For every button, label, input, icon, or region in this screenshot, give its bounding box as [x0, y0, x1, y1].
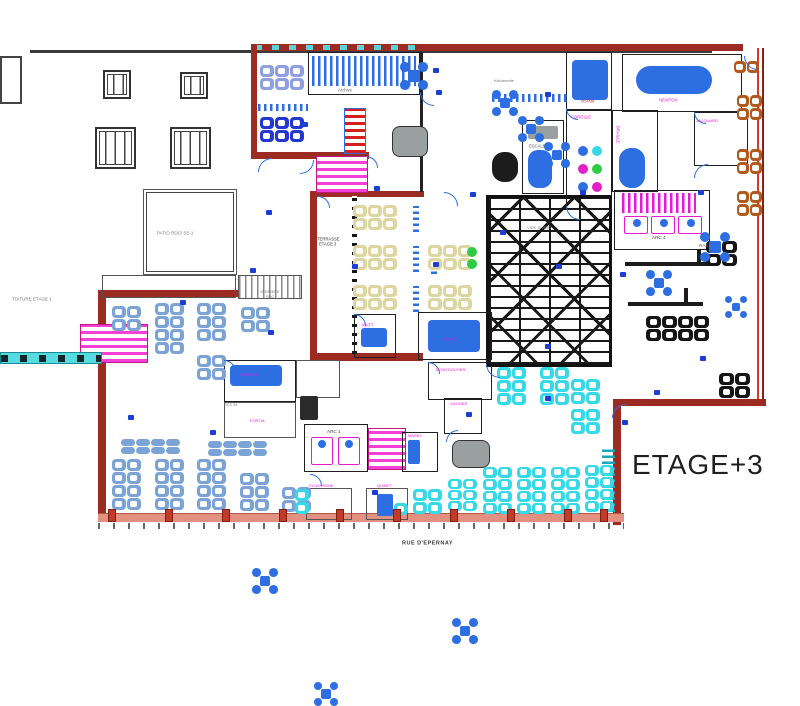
chair-dot: [318, 440, 326, 448]
desk: [197, 498, 211, 510]
blue-marker: [433, 68, 439, 73]
desk: [600, 489, 614, 500]
desk-cluster: [539, 366, 569, 405]
label-nsp06: NSP06: [581, 99, 594, 104]
desk-cluster: [259, 64, 304, 90]
desk: [290, 130, 304, 142]
label-braille: BRAILLE: [615, 126, 620, 143]
desk: [212, 459, 226, 471]
desk: [517, 479, 531, 490]
desk-cluster: [239, 472, 269, 511]
desk: [112, 485, 126, 497]
desk: [555, 367, 569, 379]
blue-marker: [700, 356, 706, 361]
structural-pillar: [507, 509, 515, 522]
planter-1: [413, 206, 419, 232]
blue-marker: [545, 92, 551, 97]
arc4-striped-counter: [622, 193, 696, 213]
floor-title: ETAGE+3: [632, 449, 764, 481]
desk: [166, 447, 180, 454]
desk: [353, 285, 367, 297]
label-synchrone: SYNCHRONE: [309, 484, 333, 488]
desk: [127, 498, 141, 510]
chair-dot: [592, 164, 602, 174]
desk: [197, 329, 211, 341]
desk-cluster: [352, 244, 397, 270]
desk: [678, 316, 693, 328]
desk: [127, 472, 141, 484]
facade-window-3: [95, 127, 136, 169]
desk: [212, 329, 226, 341]
blue-marker: [128, 415, 134, 420]
structural-pillar: [108, 509, 116, 522]
door-swing-arc: [694, 164, 708, 178]
desk: [170, 316, 184, 328]
door-swing-arc: [366, 156, 378, 168]
desk: [458, 298, 472, 310]
facade-window-4: [170, 127, 211, 169]
stairwell-north: [316, 156, 368, 193]
planter-2: [413, 246, 419, 272]
desk: [383, 285, 397, 297]
desk: [555, 380, 569, 392]
desk: [155, 303, 169, 315]
desk: [208, 449, 222, 456]
structural-pillar: [336, 509, 344, 522]
desk: [260, 78, 274, 90]
desk: [551, 467, 565, 478]
blue-marker: [580, 190, 586, 195]
desk-cluster: [570, 378, 600, 404]
label-jacquard: JACQUARD: [696, 119, 718, 123]
terrace-walkway: [102, 275, 236, 298]
label-watt: WATT: [362, 323, 373, 328]
door-swing-arc: [444, 192, 458, 206]
desk: [383, 258, 397, 270]
toiture-glazing-strip: [0, 352, 102, 364]
desk: [368, 298, 382, 310]
desk: [540, 367, 554, 379]
cross-table: [725, 296, 747, 318]
desk-cluster: [154, 458, 184, 510]
desk: [368, 205, 382, 217]
desk: [353, 298, 367, 310]
desk: [497, 380, 511, 392]
desk-cluster: [111, 305, 141, 331]
desk-cluster: [645, 315, 709, 341]
label-fortia: FORTIA: [250, 419, 265, 423]
desk: [212, 498, 226, 510]
desk: [197, 368, 211, 380]
cross-table: [518, 116, 544, 142]
desk: [428, 298, 442, 310]
desk: [170, 459, 184, 471]
chair-dot: [467, 259, 477, 269]
blue-marker: [374, 186, 380, 191]
desk: [719, 373, 734, 385]
desk: [127, 319, 141, 331]
desk: [275, 78, 289, 90]
desk: [551, 491, 565, 502]
desk: [368, 218, 382, 230]
blue-marker: [302, 122, 308, 127]
cross-table-gagner: [452, 618, 478, 644]
desk: [600, 477, 614, 488]
desk: [212, 485, 226, 497]
chair-dot: [578, 146, 588, 156]
desk: [295, 489, 309, 501]
desk: [719, 386, 734, 398]
desk-cluster: [427, 284, 472, 310]
blue-marker: [372, 490, 378, 495]
desk: [646, 316, 661, 328]
desk: [197, 459, 211, 471]
desk: [694, 316, 709, 328]
desk: [170, 485, 184, 497]
desk: [223, 449, 237, 456]
cross-table: [544, 142, 570, 168]
desk: [532, 467, 546, 478]
desk-cluster: [570, 408, 600, 434]
table-marby: [408, 440, 420, 464]
desk-cluster: [352, 204, 397, 230]
desk: [737, 162, 749, 174]
central-void-core: [486, 195, 612, 367]
blue-marker: [500, 230, 506, 235]
desk: [112, 306, 126, 318]
desk-cluster: [120, 438, 180, 454]
desk: [170, 329, 184, 341]
desk: [170, 472, 184, 484]
desk: [260, 130, 274, 142]
desk: [532, 503, 546, 514]
desk: [532, 479, 546, 490]
desk: [585, 477, 599, 488]
chair-dot: [660, 219, 668, 227]
door-swing-arc: [258, 158, 272, 172]
desk: [463, 479, 477, 489]
label-quinet: QUINET: [377, 484, 391, 488]
counter-ras-lower-return: [684, 288, 688, 306]
desk-cluster: [294, 488, 309, 514]
desk: [383, 218, 397, 230]
chair-dot: [592, 146, 602, 156]
desk: [750, 162, 762, 174]
desk: [737, 191, 749, 203]
label-gagner: GAGNER: [450, 402, 467, 406]
desk: [136, 447, 150, 454]
blue-marker: [433, 262, 439, 267]
desk: [662, 329, 677, 341]
blue-marker: [622, 420, 628, 425]
desk: [255, 486, 269, 498]
cross-table: [492, 90, 518, 116]
desk: [600, 465, 614, 476]
shelf-row: [258, 104, 308, 111]
desk: [512, 380, 526, 392]
desk-cluster: [482, 466, 512, 514]
desk: [383, 298, 397, 310]
desk: [585, 501, 599, 512]
desk-cluster: [718, 372, 750, 398]
desk: [368, 245, 382, 257]
desk-cluster: [736, 148, 762, 174]
blue-marker: [466, 412, 472, 417]
desk: [260, 117, 274, 129]
exterior-wall-bottom: [98, 513, 624, 522]
desk: [275, 130, 289, 142]
desk: [256, 307, 270, 319]
blue-marker: [266, 210, 272, 215]
desk: [295, 502, 309, 514]
desk-cluster: [259, 116, 304, 142]
desk: [112, 459, 126, 471]
label-toiture-etage-1: TOITURE ETAGE 1: [12, 297, 52, 302]
label-ras: RAS: [699, 243, 708, 248]
structural-pillar: [450, 509, 458, 522]
label-rdc: RDC: [266, 295, 274, 299]
desk-cluster: [736, 94, 762, 120]
desk: [155, 498, 169, 510]
table-watt: [361, 328, 387, 347]
desk-cluster: [736, 190, 762, 216]
desk: [555, 393, 569, 405]
desk: [383, 205, 397, 217]
desk-cluster: [412, 488, 442, 514]
desk: [151, 447, 165, 454]
room-synchrone: [306, 488, 352, 520]
desk: [241, 320, 255, 332]
desk: [413, 489, 427, 501]
desk: [646, 329, 661, 341]
desk: [586, 379, 600, 391]
blue-marker: [654, 390, 660, 395]
desk: [586, 392, 600, 404]
desk: [166, 439, 180, 446]
desk: [413, 502, 427, 514]
desk: [253, 449, 267, 456]
gray-equipment-north: [392, 126, 428, 157]
desk: [368, 285, 382, 297]
desk: [737, 108, 749, 120]
desk: [443, 245, 457, 257]
desk: [540, 380, 554, 392]
desk: [585, 465, 599, 476]
planter-3: [413, 286, 419, 312]
facade-window-1: [103, 70, 131, 99]
blue-marker: [250, 268, 256, 273]
street-label: RUE D'EPERNAY: [402, 540, 453, 546]
desk: [240, 473, 254, 485]
desk: [448, 479, 462, 489]
blue-marker: [620, 272, 626, 277]
desk: [483, 491, 497, 502]
terrasse-wall-left: [310, 191, 317, 361]
blue-marker: [545, 344, 551, 349]
desk: [517, 491, 531, 502]
label-marby: MARBY: [408, 434, 422, 438]
desk: [238, 441, 252, 448]
desk: [212, 316, 226, 328]
desk: [566, 491, 580, 502]
desk: [112, 319, 126, 331]
stairwell-south: [368, 428, 406, 470]
desk: [585, 489, 599, 500]
label-montgolfier: MONTGOLFIER: [436, 368, 465, 372]
desk: [253, 441, 267, 448]
meeting-table-braille: [619, 148, 645, 188]
desk: [353, 245, 367, 257]
desk: [112, 498, 126, 510]
desk: [155, 342, 169, 354]
label-escale: ESCALE: [529, 144, 546, 149]
desk: [155, 459, 169, 471]
blue-marker: [545, 396, 551, 401]
label-corolle: COROLLE: [571, 115, 591, 120]
desk: [155, 472, 169, 484]
desk-cluster: [111, 458, 141, 510]
desk: [223, 441, 237, 448]
desk: [212, 472, 226, 484]
structural-pillar: [222, 509, 230, 522]
desk-cluster: [196, 458, 226, 510]
fire-stair: [344, 108, 366, 154]
chair-dot: [633, 219, 641, 227]
desk: [737, 204, 749, 216]
label-arc-1: ARC 1: [327, 429, 341, 434]
desk-cluster: [352, 284, 397, 310]
desk: [737, 149, 749, 161]
desk: [290, 65, 304, 77]
desk: [737, 95, 749, 107]
desk: [260, 65, 274, 77]
desk: [290, 78, 304, 90]
desk: [551, 503, 565, 514]
label-nemo: NEMO: [443, 337, 456, 342]
structural-pillar: [279, 509, 287, 522]
desk: [155, 485, 169, 497]
desk: [551, 479, 565, 490]
conference-table-newton: [636, 66, 712, 94]
desk: [750, 149, 762, 161]
desk: [275, 65, 289, 77]
label-kitchenette: Kitchenette: [494, 79, 514, 83]
label-pumpkin: PUMPKIN: [239, 373, 257, 377]
desk: [750, 95, 762, 107]
desk-cluster: [240, 306, 270, 332]
desk: [197, 303, 211, 315]
blue-marker: [556, 264, 562, 269]
desk: [498, 479, 512, 490]
desk: [498, 491, 512, 502]
sidewalk-ticks: [98, 523, 624, 529]
gray-equipment-south: [452, 440, 490, 468]
desk: [586, 409, 600, 421]
desk-cluster: [196, 354, 226, 380]
desk: [662, 316, 677, 328]
cross-table: [400, 62, 428, 90]
desk: [121, 447, 135, 454]
desk: [212, 303, 226, 315]
chair-dot: [345, 440, 353, 448]
cross-table-fortia: [252, 568, 278, 594]
desk: [483, 467, 497, 478]
desk: [443, 285, 457, 297]
desk: [197, 472, 211, 484]
desk: [566, 479, 580, 490]
desk: [127, 459, 141, 471]
desk: [208, 441, 222, 448]
desk: [151, 439, 165, 446]
label-vide-s-rdc: VIDE S/ RDC: [527, 226, 551, 230]
desk: [428, 502, 442, 514]
desk: [571, 392, 585, 404]
facade-annex: [0, 56, 22, 104]
desk: [483, 503, 497, 514]
label-archive: Archive: [338, 88, 352, 93]
desk: [750, 204, 762, 216]
desk: [136, 439, 150, 446]
desk: [170, 498, 184, 510]
desk: [275, 117, 289, 129]
copier: [300, 396, 318, 420]
desk: [458, 285, 472, 297]
desk: [383, 245, 397, 257]
desk-cluster: [207, 440, 267, 456]
desk: [255, 473, 269, 485]
desk-cluster: [196, 302, 226, 341]
structural-pillar: [600, 509, 608, 522]
desk: [428, 285, 442, 297]
desk: [566, 467, 580, 478]
desk: [517, 503, 531, 514]
desk: [443, 258, 457, 270]
desk: [353, 218, 367, 230]
desk: [512, 367, 526, 379]
desk: [483, 479, 497, 490]
desk: [571, 379, 585, 391]
floor-plan-etage-3: ETAGE+3 RUE D'EPERNAY PATIO RDC/ SS-1TOI…: [0, 0, 800, 600]
desk: [155, 316, 169, 328]
desk-cluster: [584, 464, 614, 512]
chair-dot: [467, 247, 477, 257]
desk: [353, 205, 367, 217]
label-rcs-04: RCS 04: [224, 403, 237, 407]
desk: [750, 108, 762, 120]
label-newton: NEWTON: [659, 98, 678, 103]
desk: [238, 449, 252, 456]
desk: [197, 485, 211, 497]
desk: [512, 393, 526, 405]
desk-cluster: [516, 466, 546, 514]
desk-cluster: [447, 478, 477, 511]
desk-cluster: [496, 366, 526, 405]
blue-marker: [698, 190, 704, 195]
door-swing-arc: [300, 160, 314, 174]
desk: [448, 490, 462, 500]
label-patio-rdc-ss-1: PATIO RDC/ SS-1: [157, 231, 193, 236]
label-etage-3: ETAGE 3: [319, 242, 336, 247]
notch-wall-top: [613, 399, 766, 406]
desk: [112, 472, 126, 484]
desk: [255, 499, 269, 511]
desk-cluster: [154, 302, 184, 354]
blue-marker: [352, 264, 358, 269]
desk: [127, 306, 141, 318]
blue-marker: [180, 300, 186, 305]
exterior-wall-left-upper: [251, 44, 257, 159]
desk: [497, 393, 511, 405]
